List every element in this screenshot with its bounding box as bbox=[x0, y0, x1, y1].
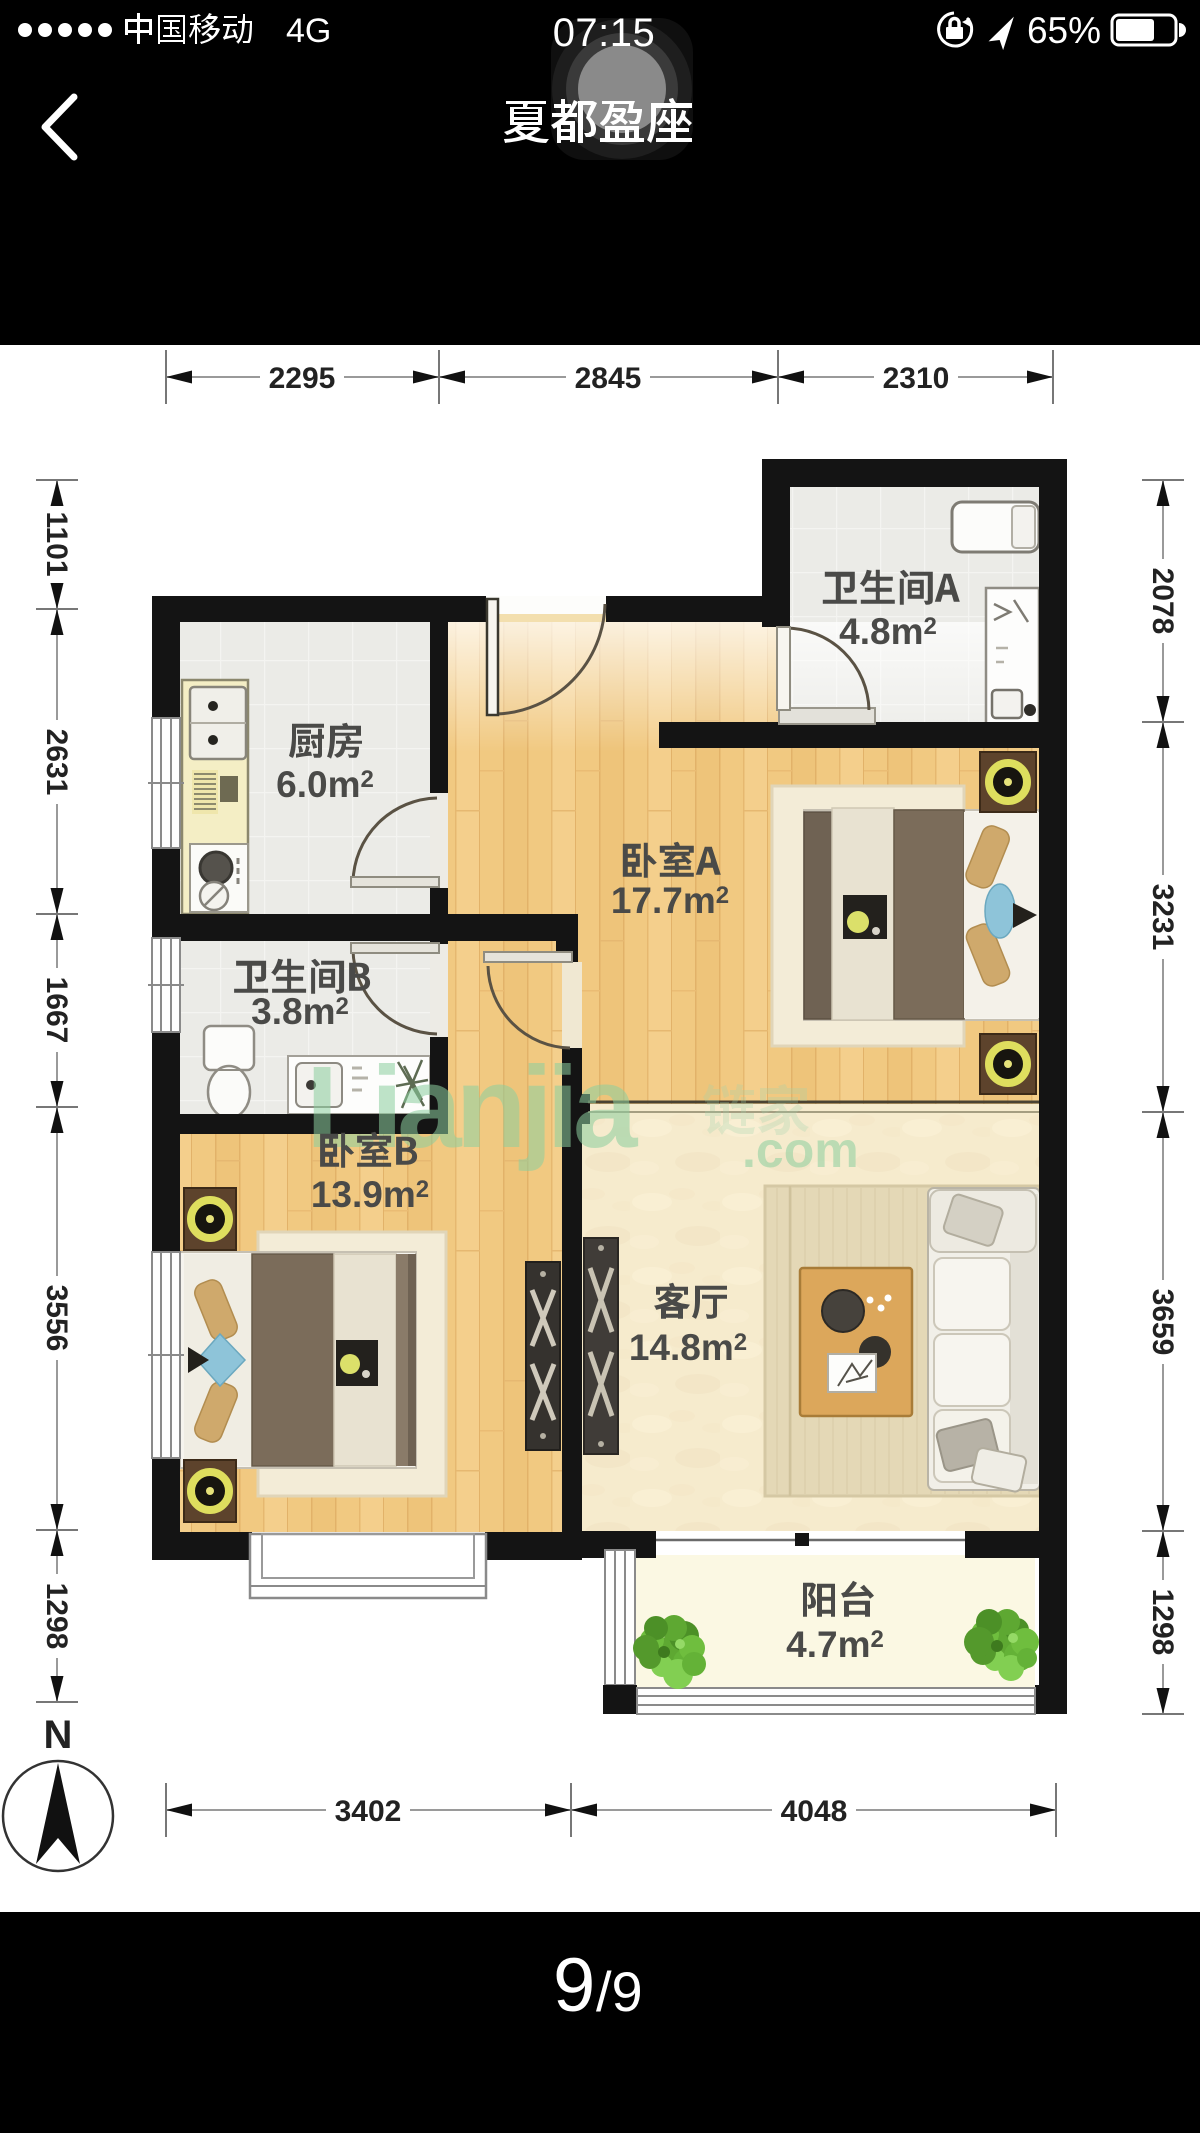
svg-text:4G: 4G bbox=[286, 12, 331, 50]
svg-text:2078: 2078 bbox=[1146, 568, 1179, 635]
svg-text:6.0m2: 6.0m2 bbox=[276, 764, 374, 805]
svg-text:4048: 4048 bbox=[781, 1795, 848, 1828]
svg-text:3659: 3659 bbox=[1146, 1289, 1179, 1356]
svg-text:3.8m2: 3.8m2 bbox=[251, 991, 349, 1032]
svg-text:2310: 2310 bbox=[883, 362, 950, 395]
svg-text:3402: 3402 bbox=[335, 1795, 402, 1828]
svg-text:1667: 1667 bbox=[40, 977, 73, 1044]
svg-text:65%: 65% bbox=[1027, 10, 1101, 51]
svg-text:17.7m2: 17.7m2 bbox=[611, 880, 729, 921]
svg-text:2845: 2845 bbox=[575, 362, 642, 395]
svg-text:2295: 2295 bbox=[269, 362, 336, 395]
svg-text:N: N bbox=[44, 1713, 73, 1757]
svg-text:3231: 3231 bbox=[1146, 884, 1179, 951]
svg-text:2631: 2631 bbox=[40, 729, 73, 796]
svg-text:4.8m2: 4.8m2 bbox=[839, 611, 937, 652]
svg-text:14.8m2: 14.8m2 bbox=[629, 1327, 747, 1368]
svg-text:3556: 3556 bbox=[40, 1285, 73, 1352]
svg-text:.com: .com bbox=[742, 1122, 859, 1178]
svg-text:13.9m2: 13.9m2 bbox=[311, 1174, 429, 1215]
svg-text:1101: 1101 bbox=[40, 511, 73, 576]
svg-text:4.7m2: 4.7m2 bbox=[786, 1624, 884, 1665]
svg-text:1298: 1298 bbox=[1146, 1589, 1179, 1656]
svg-text:07:15: 07:15 bbox=[553, 11, 656, 55]
svg-text:1298: 1298 bbox=[40, 1583, 73, 1650]
svg-text:Lianjia: Lianjia bbox=[306, 1042, 639, 1172]
